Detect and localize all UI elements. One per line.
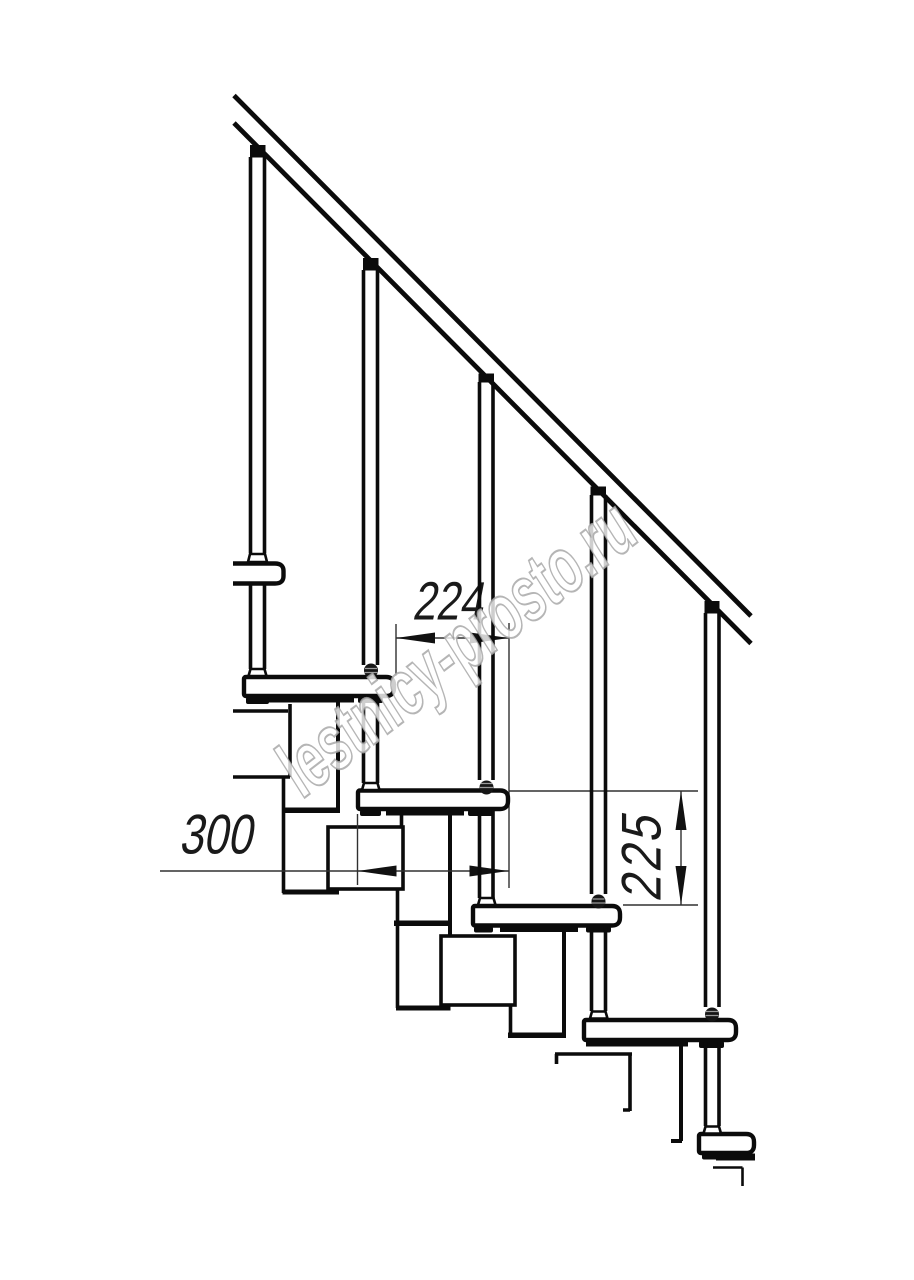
svg-text:225: 225	[611, 803, 673, 905]
svg-text:300: 300	[176, 803, 261, 866]
